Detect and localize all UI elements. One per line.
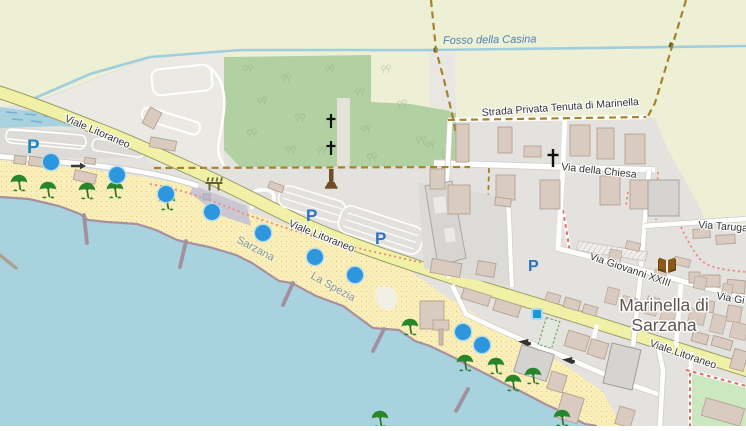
svg-text:P: P	[27, 137, 40, 158]
svg-text:Marinella di: Marinella di	[619, 295, 708, 315]
svg-text:Sarzana: Sarzana	[631, 315, 696, 335]
svg-text:P: P	[528, 258, 539, 275]
svg-text:P: P	[306, 206, 317, 225]
svg-text:Fosso della Casina: Fosso della Casina	[443, 33, 537, 47]
svg-text:P: P	[375, 229, 386, 248]
